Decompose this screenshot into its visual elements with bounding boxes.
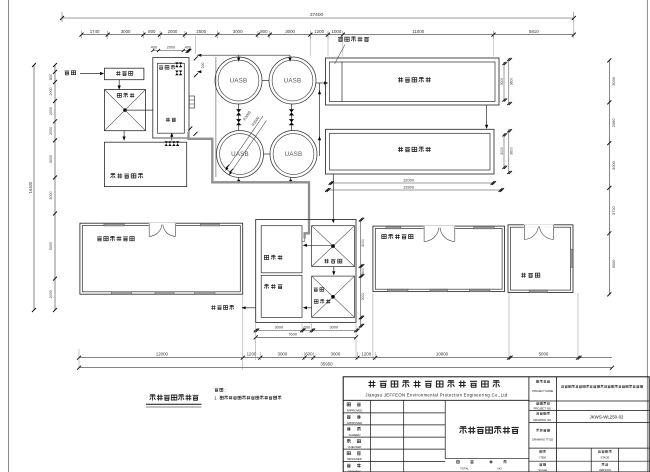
svg-text:1000: 1000	[332, 29, 342, 34]
svg-text:2000: 2000	[49, 107, 53, 115]
svg-text:DRAWING TITLE: DRAWING TITLE	[532, 438, 553, 442]
svg-text:3720: 3720	[611, 205, 616, 214]
svg-text:R3000: R3000	[243, 110, 252, 121]
svg-text:400: 400	[151, 46, 157, 50]
svg-text:PROJECT NO.: PROJECT NO.	[534, 406, 552, 410]
svg-text:UASB: UASB	[230, 78, 248, 85]
svg-text:Jiangsu JEFFEON Environmental: Jiangsu JEFFEON Environmental Protection…	[365, 393, 508, 398]
svg-text:12000: 12000	[403, 177, 415, 182]
svg-text:3000: 3000	[121, 29, 131, 34]
svg-text:CHECKED: CHECKED	[348, 445, 362, 449]
svg-text:100: 100	[201, 63, 205, 69]
svg-text:16400: 16400	[28, 181, 33, 193]
svg-text:APPROVED: APPROVED	[347, 421, 363, 425]
svg-text:VERSION: VERSION	[599, 468, 611, 472]
svg-text:2000: 2000	[168, 29, 178, 34]
svg-text:5000: 5000	[49, 242, 53, 250]
svg-text:1200: 1200	[314, 29, 324, 34]
svg-text:3000: 3000	[329, 324, 338, 329]
svg-text:5000: 5000	[539, 351, 549, 356]
svg-text:1: 1	[214, 395, 217, 400]
svg-text:1200: 1200	[361, 351, 371, 356]
svg-text:3600: 3600	[509, 147, 513, 155]
svg-text:600: 600	[361, 268, 365, 274]
svg-text:UASB: UASB	[285, 151, 303, 158]
svg-text:800: 800	[49, 74, 53, 80]
svg-text:SCALE: SCALE	[538, 468, 547, 472]
svg-text:3000: 3000	[274, 324, 283, 329]
svg-text:12800: 12800	[403, 184, 415, 189]
svg-text:DESIGNED: DESIGNED	[347, 457, 362, 461]
svg-text:3000: 3000	[278, 351, 288, 356]
svg-text:JKWS-WL250-02: JKWS-WL250-02	[590, 414, 624, 419]
svg-text:3000: 3000	[49, 191, 53, 199]
svg-text::: :	[225, 387, 226, 392]
svg-text:PROJECT NAME: PROJECT NAME	[532, 389, 553, 393]
svg-text:STAGE: STAGE	[600, 455, 609, 459]
svg-text:5810: 5810	[529, 29, 539, 34]
svg-text:600: 600	[305, 351, 313, 356]
svg-text:UASB: UASB	[231, 151, 249, 158]
svg-text:ITEM: ITEM	[539, 455, 546, 459]
svg-text:2080: 2080	[611, 118, 616, 127]
svg-text:11000: 11000	[412, 29, 424, 34]
svg-text:UASB: UASB	[284, 78, 302, 85]
svg-text:2000: 2000	[49, 290, 53, 298]
svg-text:AGREED: AGREED	[349, 433, 361, 437]
svg-text:NO.: NO.	[498, 467, 503, 471]
svg-text:3000: 3000	[331, 351, 341, 356]
svg-text:12000: 12000	[156, 351, 169, 356]
svg-text:3000: 3000	[361, 293, 365, 301]
svg-text:2500: 2500	[196, 29, 206, 34]
svg-text:2000: 2000	[49, 87, 53, 95]
svg-text:3000: 3000	[285, 29, 295, 34]
svg-text:R3500: R3500	[251, 116, 260, 127]
svg-text:400: 400	[185, 46, 191, 50]
svg-text:1200: 1200	[247, 351, 257, 356]
svg-text:10000: 10000	[436, 351, 449, 356]
svg-text:3000: 3000	[233, 29, 243, 34]
svg-text:3000: 3000	[49, 155, 53, 163]
svg-text:1740: 1740	[90, 29, 100, 34]
svg-text:APPROVED: APPROVED	[347, 408, 363, 412]
svg-text:7600: 7600	[288, 331, 297, 336]
svg-text:3000: 3000	[361, 239, 365, 247]
svg-text:3000: 3000	[500, 147, 504, 155]
svg-text:DRAWING NO.: DRAWING NO.	[533, 418, 552, 422]
svg-text:800: 800	[260, 29, 268, 34]
svg-text:37400: 37400	[310, 12, 324, 18]
svg-text:TOTAL: TOTAL	[460, 467, 469, 471]
svg-text:3600: 3600	[509, 78, 513, 86]
svg-text:3000: 3000	[611, 160, 616, 169]
svg-text:3000: 3000	[500, 78, 504, 86]
svg-text:2000: 2000	[49, 127, 53, 135]
svg-text:2000: 2000	[167, 46, 175, 50]
svg-text:5000: 5000	[611, 259, 616, 268]
svg-text:35950: 35950	[320, 362, 333, 367]
svg-text:800: 800	[148, 29, 156, 34]
svg-text:600: 600	[304, 324, 311, 329]
svg-text:3000: 3000	[611, 76, 616, 85]
